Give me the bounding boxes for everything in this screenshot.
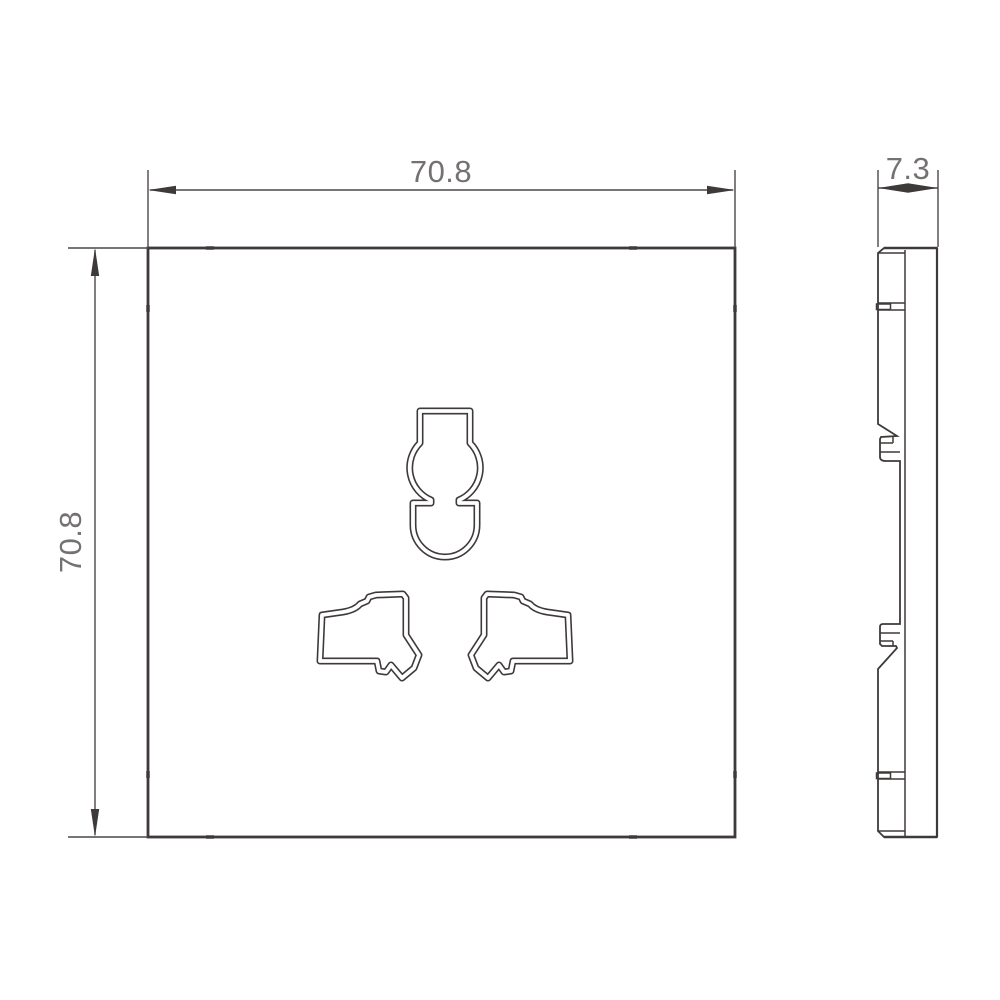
- dimension-width-label: 70.8: [410, 154, 472, 189]
- left-pin-slot: [320, 594, 419, 678]
- arrowhead-top: [91, 248, 99, 276]
- arrowhead-left: [148, 186, 176, 194]
- front-view: [148, 248, 735, 837]
- dimension-height-label: 70.8: [53, 511, 88, 573]
- side-profile-edges: [884, 248, 937, 837]
- dimension-width: 70.8: [148, 154, 735, 248]
- side-profile-outline: [878, 248, 937, 837]
- dimension-thickness: 7.3: [878, 151, 938, 247]
- right-pin-slot: [471, 594, 570, 678]
- earth-pin-hole: [410, 411, 481, 557]
- dimension-drawing: 70.8 70.8 7.3: [0, 0, 1000, 1000]
- edge-tick-marks: [148, 248, 735, 837]
- arrowhead-right: [707, 186, 735, 194]
- dimension-thickness-label: 7.3: [886, 151, 931, 186]
- arrowhead-bottom: [91, 809, 99, 837]
- face-plate-front: [148, 248, 735, 837]
- side-view: [877, 248, 938, 837]
- dimension-height: 70.8: [53, 248, 148, 837]
